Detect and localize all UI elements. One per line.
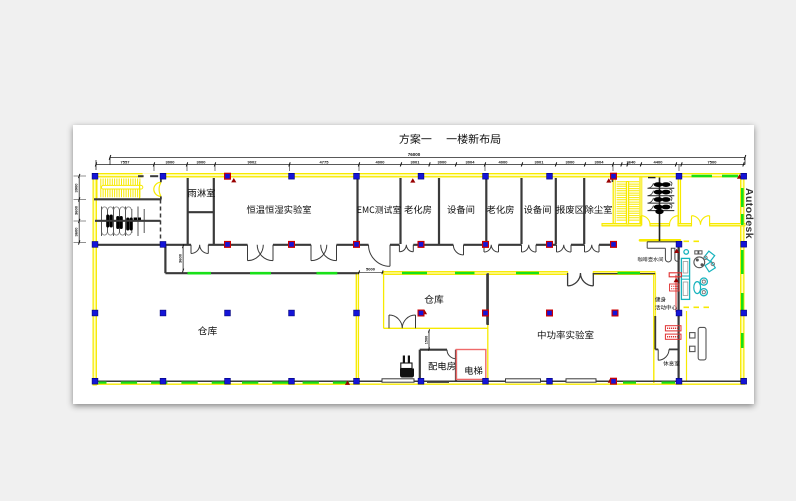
svg-text:4000: 4000 (376, 160, 386, 165)
svg-text:3900: 3900 (74, 183, 79, 193)
svg-text:4775: 4775 (320, 160, 330, 165)
svg-text:3001: 3001 (411, 160, 421, 165)
svg-text:3000: 3000 (166, 160, 176, 165)
svg-text:Autodesk: Autodesk (743, 188, 755, 239)
svg-text:4400: 4400 (654, 160, 664, 165)
svg-text:76000: 76000 (408, 152, 421, 157)
svg-text:7557: 7557 (121, 160, 131, 165)
svg-text:3004: 3004 (595, 160, 605, 165)
svg-text:3000: 3000 (566, 160, 576, 165)
svg-text:5000: 5000 (366, 267, 376, 272)
svg-text:3000: 3000 (438, 160, 448, 165)
svg-text:9002: 9002 (248, 160, 258, 165)
svg-text:3004: 3004 (466, 160, 476, 165)
svg-text:1500: 1500 (424, 336, 428, 344)
svg-text:7500: 7500 (708, 160, 718, 165)
svg-text:3600: 3600 (177, 253, 182, 263)
svg-text:3600: 3600 (74, 227, 79, 237)
svg-text:2640: 2640 (627, 160, 637, 165)
svg-text:3600: 3600 (74, 205, 79, 215)
svg-text:4000: 4000 (499, 160, 509, 165)
svg-text:3001: 3001 (535, 160, 545, 165)
svg-text:3000: 3000 (197, 160, 207, 165)
